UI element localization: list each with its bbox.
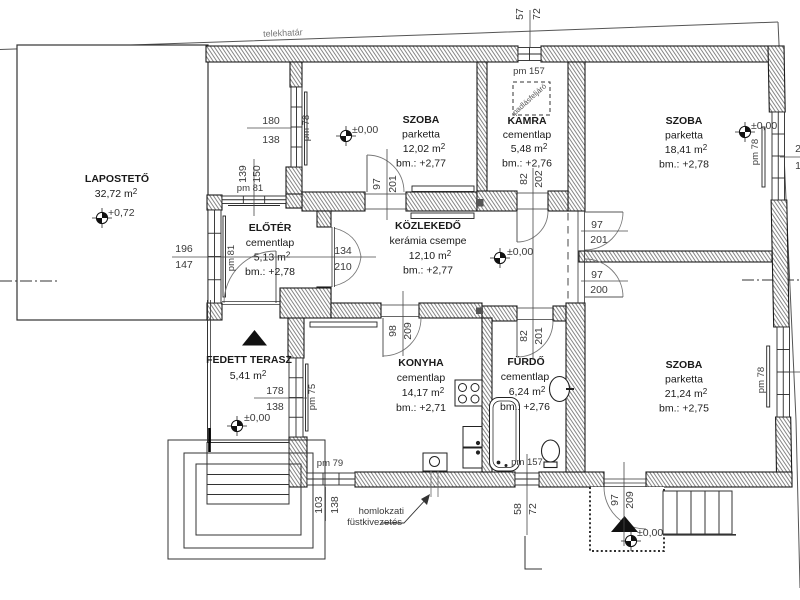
svg-text:±0,00: ±0,00: [352, 124, 378, 136]
svg-text:58: 58: [512, 503, 524, 515]
svg-text:196: 196: [175, 243, 193, 255]
svg-text:cementlap: cementlap: [397, 372, 446, 384]
svg-text:139: 139: [237, 165, 249, 183]
svg-text:98: 98: [387, 325, 399, 337]
svg-text:82: 82: [518, 173, 530, 185]
svg-text:178: 178: [266, 385, 284, 397]
svg-text:parketta: parketta: [665, 130, 703, 142]
svg-text:cementlap: cementlap: [501, 371, 550, 383]
svg-text:pm 78: pm 78: [301, 115, 312, 141]
svg-text:97: 97: [371, 178, 383, 190]
svg-text:97: 97: [591, 219, 603, 231]
svg-text:homlokzati: homlokzati: [359, 506, 404, 517]
svg-text:cementlap: cementlap: [246, 237, 295, 249]
svg-text:5,48 m2: 5,48 m2: [511, 142, 548, 155]
svg-text:bm.: +2,78: bm.: +2,78: [245, 266, 295, 278]
svg-text:97: 97: [609, 494, 621, 506]
svg-text:103: 103: [313, 496, 325, 514]
svg-text:180: 180: [262, 115, 280, 127]
svg-text:telekhatár: telekhatár: [263, 27, 303, 39]
svg-text:+0,72: +0,72: [108, 207, 135, 219]
svg-text:LAPOSTETŐ: LAPOSTETŐ: [85, 172, 149, 185]
svg-text:12,02 m2: 12,02 m2: [403, 142, 446, 155]
svg-text:201: 201: [387, 175, 399, 193]
svg-text:bm.: +2,78: bm.: +2,78: [659, 159, 709, 171]
svg-text:bm.: +2,71: bm.: +2,71: [396, 402, 446, 414]
svg-text:KÖZLEKEDŐ: KÖZLEKEDŐ: [395, 219, 461, 232]
svg-text:200: 200: [590, 284, 608, 296]
svg-text:5,41 m2: 5,41 m2: [230, 369, 267, 382]
svg-text:57: 57: [514, 8, 526, 20]
svg-text:ELŐTÉR: ELŐTÉR: [249, 221, 292, 234]
svg-text:KONYHA: KONYHA: [398, 357, 444, 369]
svg-text:KAMRA: KAMRA: [507, 115, 546, 127]
svg-text:pm 75: pm 75: [307, 384, 318, 410]
svg-text:bm.: +2,75: bm.: +2,75: [659, 403, 709, 415]
svg-text:97: 97: [591, 269, 603, 281]
svg-text:210: 210: [334, 261, 352, 273]
svg-text:14,17 m2: 14,17 m2: [402, 386, 445, 399]
svg-text:1: 1: [795, 160, 800, 172]
svg-text:6,24 m2: 6,24 m2: [509, 385, 546, 398]
svg-text:201: 201: [533, 327, 545, 345]
svg-text:209: 209: [402, 322, 414, 340]
svg-text:72: 72: [527, 503, 539, 515]
svg-text:pm 81: pm 81: [226, 245, 237, 271]
svg-text:füstkivezetés: füstkivezetés: [347, 517, 402, 528]
svg-text:FÜRDŐ: FÜRDŐ: [507, 355, 544, 368]
svg-text:pm 78: pm 78: [756, 367, 767, 393]
svg-text:209: 209: [624, 491, 636, 509]
svg-text:pm 78: pm 78: [750, 139, 761, 165]
svg-text:138: 138: [262, 134, 280, 146]
svg-text:201: 201: [590, 234, 608, 246]
svg-text:parketta: parketta: [665, 374, 703, 386]
svg-text:±0,00: ±0,00: [507, 246, 533, 258]
svg-text:202: 202: [533, 170, 545, 188]
svg-text:SZOBA: SZOBA: [666, 115, 703, 127]
svg-text:18,41 m2: 18,41 m2: [665, 143, 708, 156]
svg-text:±0,00: ±0,00: [637, 527, 663, 539]
svg-text:bm.: +2,77: bm.: +2,77: [396, 158, 446, 170]
svg-text:bm.: +2,76: bm.: +2,76: [502, 158, 552, 170]
svg-text:SZOBA: SZOBA: [666, 359, 703, 371]
svg-text:bm.: +2,77: bm.: +2,77: [403, 265, 453, 277]
svg-text:2: 2: [795, 143, 800, 155]
svg-text:72: 72: [531, 8, 543, 20]
svg-text:kerámia csempe: kerámia csempe: [389, 235, 466, 247]
svg-text:±0,00: ±0,00: [244, 412, 270, 424]
svg-text:cementlap: cementlap: [503, 129, 552, 141]
svg-text:32,72 m2: 32,72 m2: [95, 187, 138, 200]
svg-text:12,10 m2: 12,10 m2: [409, 249, 452, 262]
svg-text:150: 150: [251, 165, 263, 183]
svg-text:parketta: parketta: [402, 129, 440, 141]
svg-text:pm 157: pm 157: [513, 66, 545, 77]
svg-text:82: 82: [518, 330, 530, 342]
svg-text:134: 134: [334, 245, 352, 257]
svg-text:pm 79: pm 79: [317, 458, 343, 469]
svg-text:21,24 m2: 21,24 m2: [665, 387, 708, 400]
svg-text:pm 81: pm 81: [237, 183, 263, 194]
svg-text:±0,00: ±0,00: [751, 120, 777, 132]
svg-text:SZOBA: SZOBA: [403, 114, 440, 126]
svg-text:138: 138: [266, 401, 284, 413]
svg-text:FEDETT TERASZ: FEDETT TERASZ: [206, 354, 292, 366]
svg-text:138: 138: [329, 496, 341, 514]
svg-text:147: 147: [175, 259, 193, 271]
svg-text:bm.: +2,76: bm.: +2,76: [500, 401, 550, 413]
